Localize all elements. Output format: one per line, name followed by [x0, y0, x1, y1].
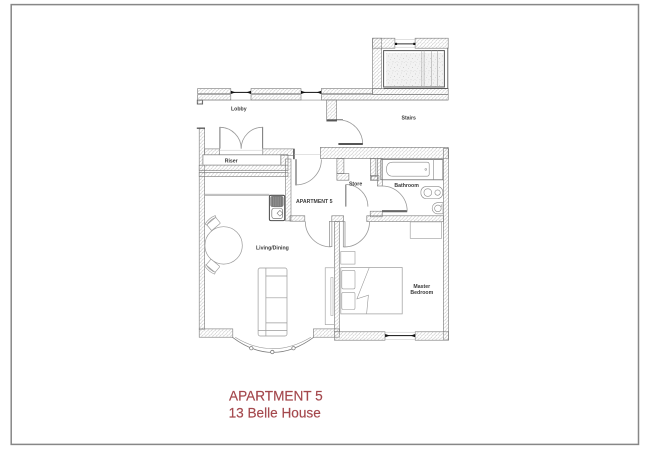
svg-text:APARTMENT 5: APARTMENT 5	[296, 199, 333, 205]
svg-text:Store: Store	[349, 181, 362, 187]
svg-text:Bathroom: Bathroom	[394, 183, 419, 189]
svg-text:Stairs: Stairs	[401, 116, 416, 122]
svg-text:Living/Dining: Living/Dining	[256, 246, 289, 252]
svg-text:APARTMENT 5: APARTMENT 5	[229, 388, 323, 403]
svg-text:Riser: Riser	[225, 159, 238, 165]
svg-text:Bedroom: Bedroom	[410, 290, 433, 296]
svg-text:Lobby: Lobby	[231, 107, 247, 113]
svg-text:13 Belle House: 13 Belle House	[229, 406, 321, 421]
